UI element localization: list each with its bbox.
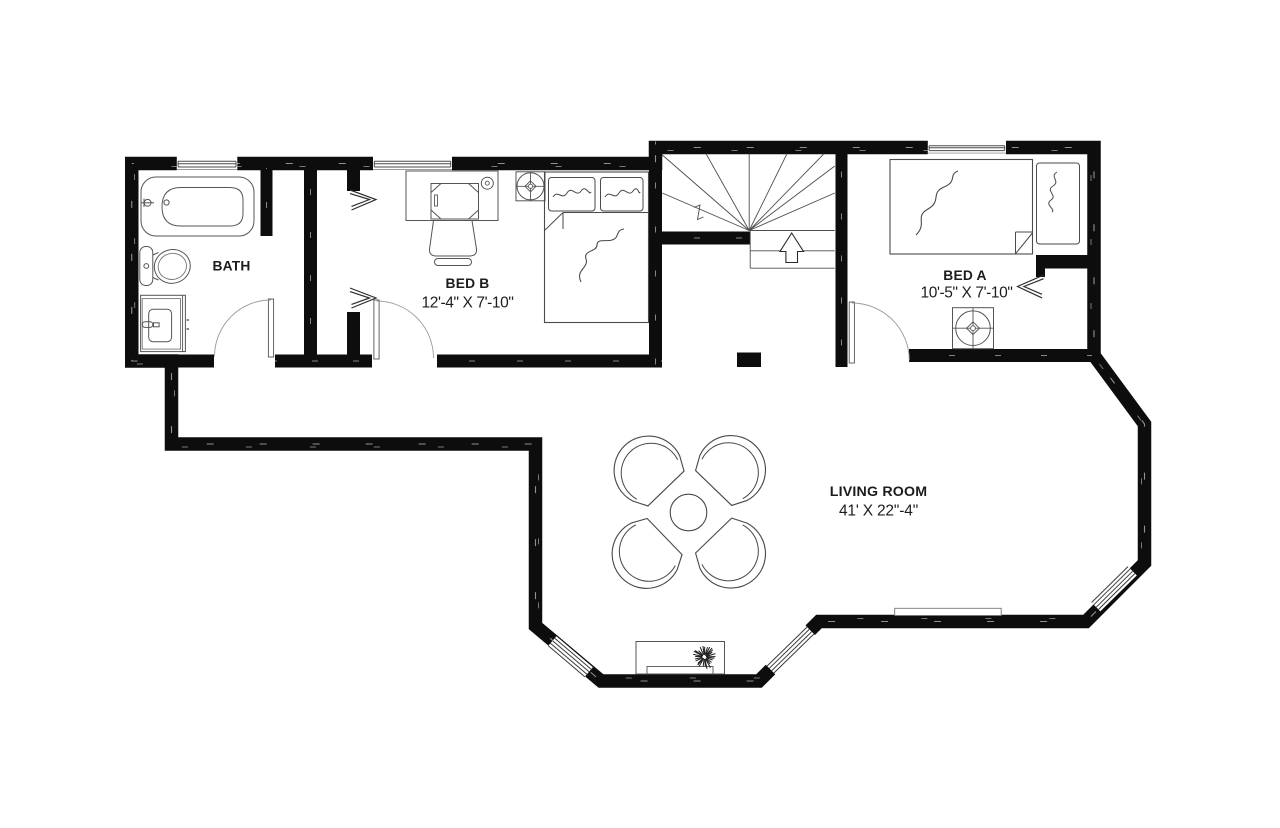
svg-text:10'-5" X 7'-10": 10'-5" X 7'-10" — [921, 285, 1013, 302]
svg-text:BATH: BATH — [212, 259, 250, 274]
svg-text:BED B: BED B — [446, 276, 490, 291]
svg-text:41' X 22''-4": 41' X 22''-4" — [839, 502, 918, 519]
svg-text:BED A: BED A — [943, 268, 986, 283]
svg-text:12'-4" X 7'-10": 12'-4" X 7'-10" — [422, 295, 514, 312]
svg-text:LIVING ROOM: LIVING ROOM — [830, 484, 928, 500]
